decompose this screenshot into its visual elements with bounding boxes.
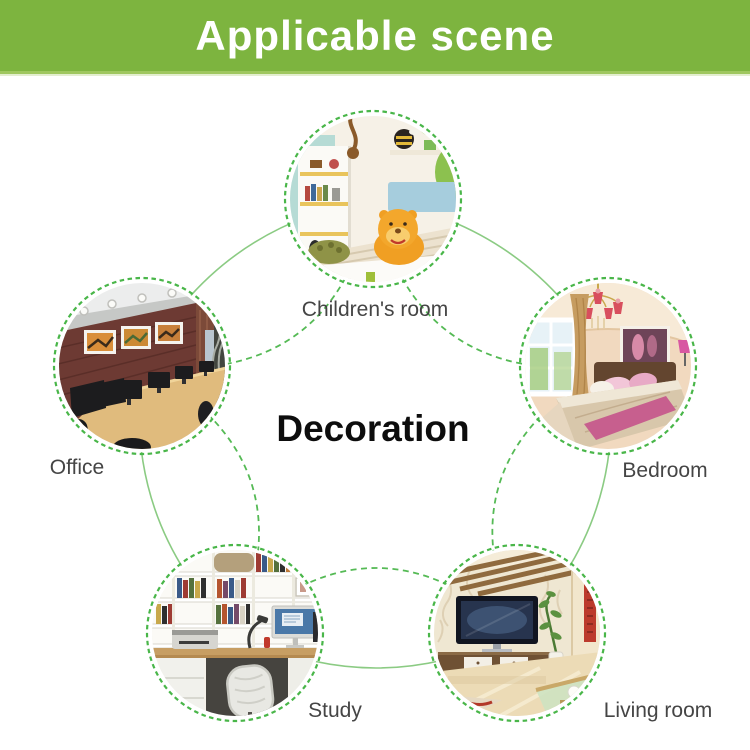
scene-circle-living-room [429,545,605,721]
center-label: Decoration [276,408,469,449]
page: Applicable scene [0,0,750,750]
scene-circle-office [54,278,230,456]
scene-circle-study [147,545,327,721]
scene-circle-bedroom [520,278,696,454]
label-bedroom: Bedroom [622,459,707,482]
label-office: Office [50,456,104,479]
office-photo [58,282,226,456]
scene-circle-children-room [285,111,475,287]
children-room-photo [289,113,475,283]
label-living-room: Living room [604,699,713,722]
label-study: Study [308,699,362,722]
label-children-room: Children's room [302,298,448,321]
decoration-diagram: Children's room Bedroom Living room Stud… [0,0,750,750]
